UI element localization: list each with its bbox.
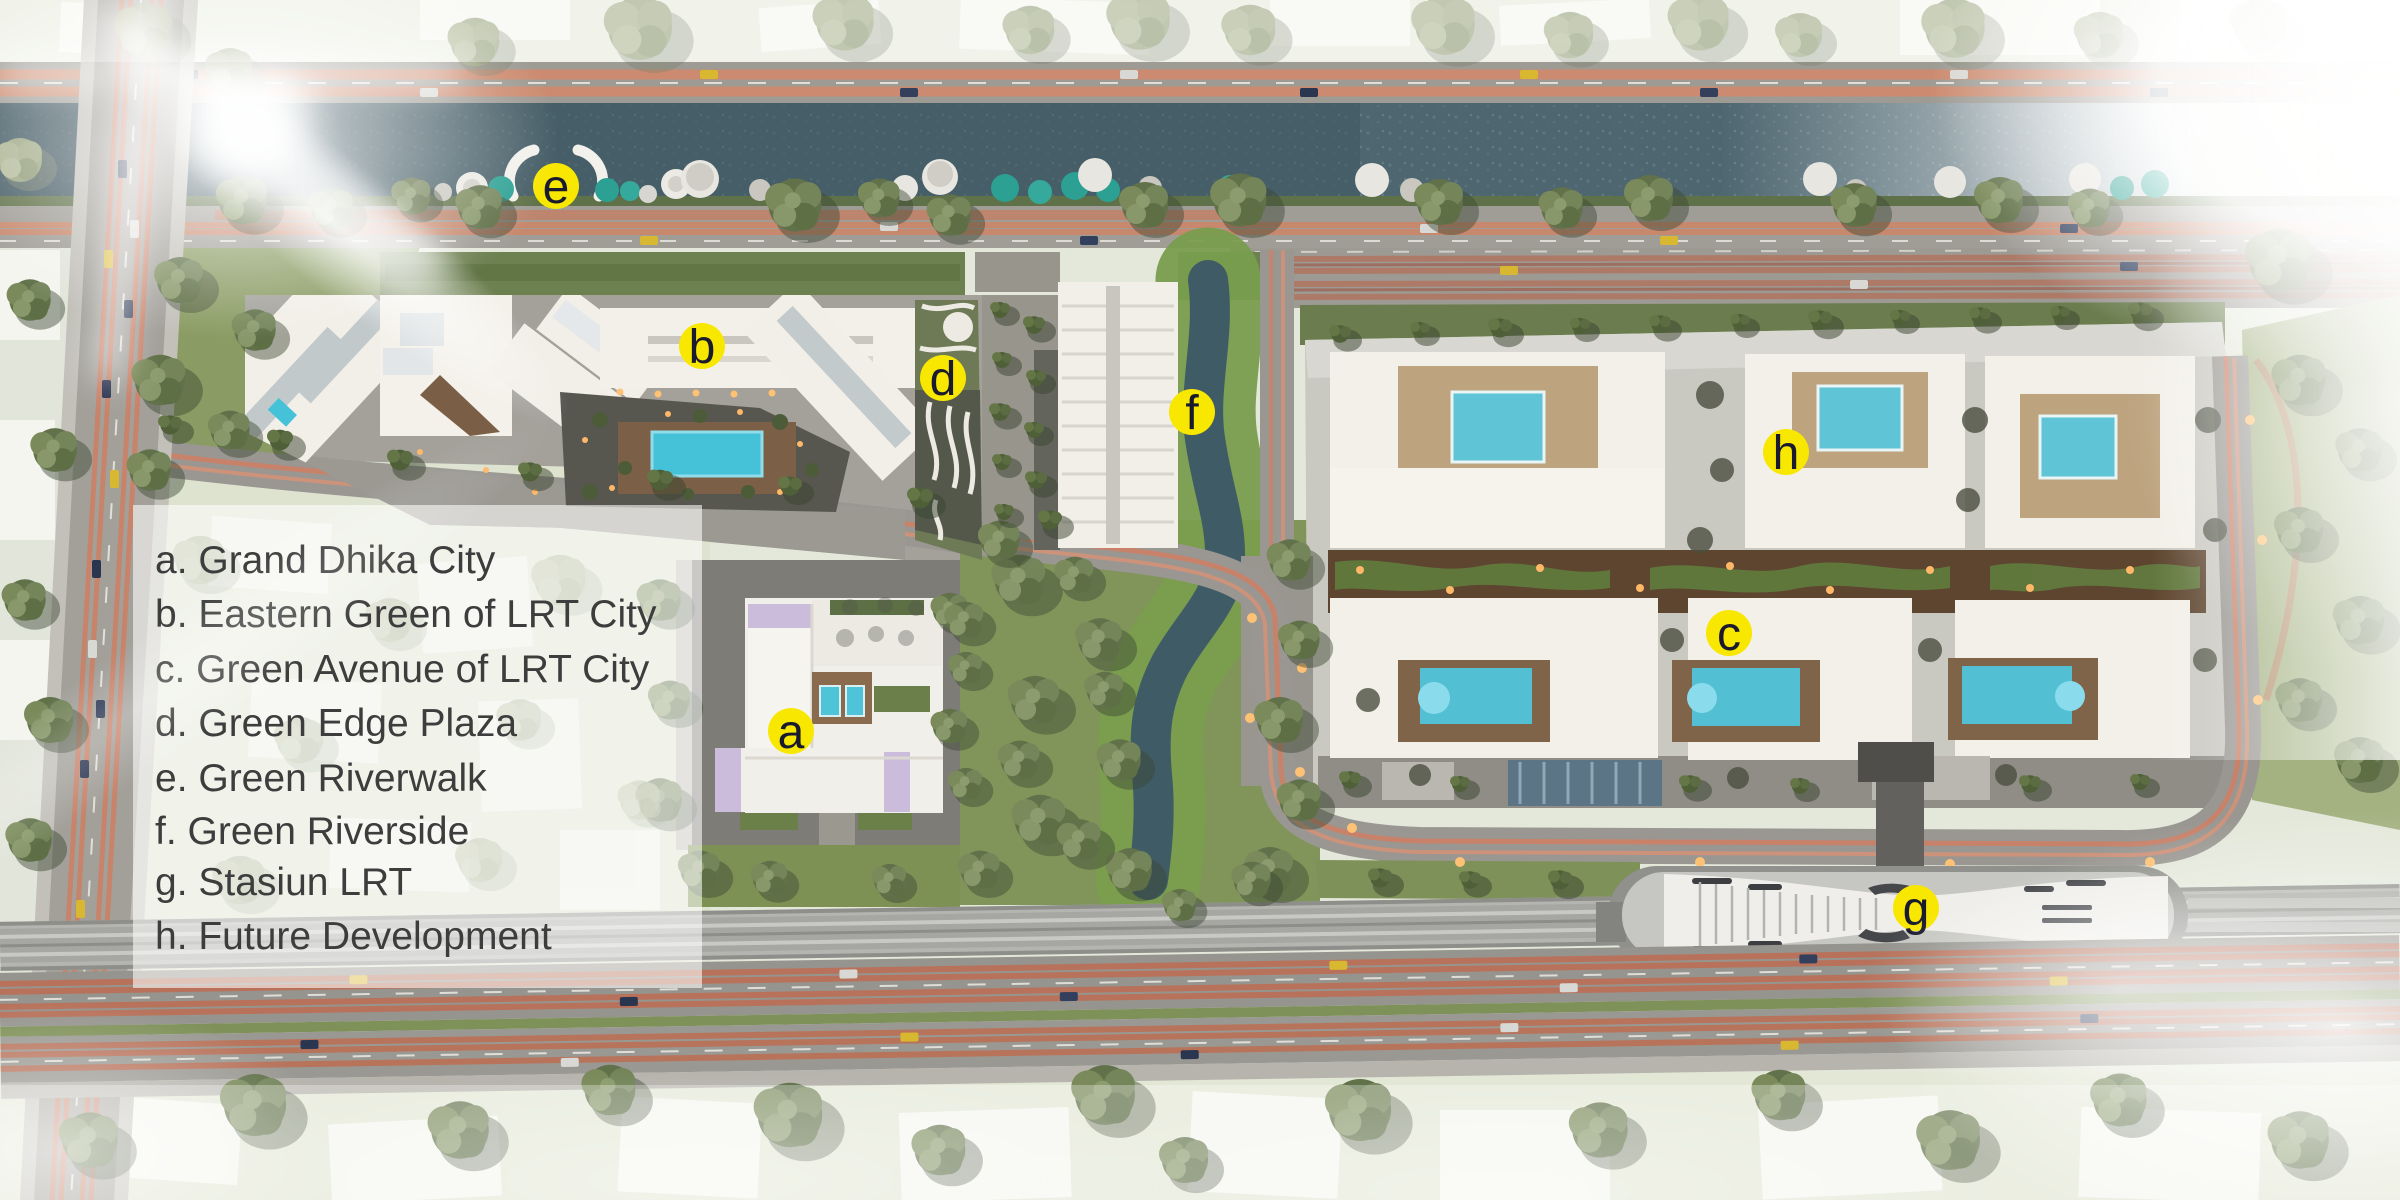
svg-text:f: f xyxy=(1185,387,1199,440)
svg-text:b: b xyxy=(689,321,716,374)
svg-text:e. Green Riverwalk: e. Green Riverwalk xyxy=(155,757,487,800)
svg-text:a: a xyxy=(778,706,805,759)
svg-text:f. Green Riverside: f. Green Riverside xyxy=(155,810,469,853)
svg-text:h. Future Development: h. Future Development xyxy=(155,915,552,958)
svg-text:d: d xyxy=(930,353,957,406)
svg-text:g. Stasiun LRT: g. Stasiun LRT xyxy=(155,861,412,904)
svg-text:h: h xyxy=(1773,427,1800,480)
svg-text:c: c xyxy=(1717,608,1741,661)
